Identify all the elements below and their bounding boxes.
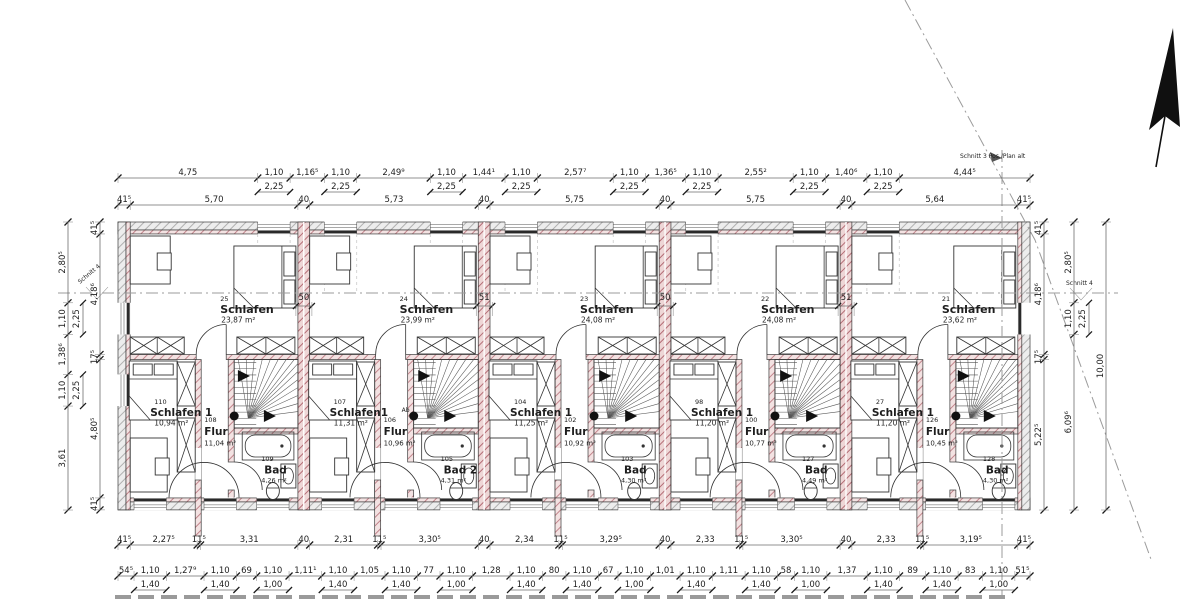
svg-text:2,25: 2,25	[264, 182, 283, 192]
desk-icon	[852, 236, 893, 284]
svg-text:1,28: 1,28	[482, 566, 501, 576]
svg-text:1,10: 1,10	[328, 566, 347, 576]
svg-text:2,31: 2,31	[334, 535, 353, 545]
svg-text:1,00: 1,00	[263, 580, 282, 590]
svg-text:Flur: Flur	[564, 426, 588, 438]
svg-text:1,10: 1,10	[932, 566, 951, 576]
svg-text:1,10: 1,10	[620, 168, 639, 178]
svg-text:1,10: 1,10	[874, 566, 893, 576]
svg-text:Bad 2: Bad 2	[444, 465, 478, 477]
svg-text:Schlafen: Schlafen	[220, 303, 274, 316]
svg-text:3,29⁵: 3,29⁵	[600, 535, 622, 545]
svg-text:24: 24	[400, 295, 408, 303]
unit-1: 25Schlafen23,87 m²110Schlafen 110,94 m²1…	[129, 236, 298, 500]
svg-text:1,40: 1,40	[932, 580, 951, 590]
svg-text:2,57⁷: 2,57⁷	[564, 168, 587, 178]
svg-text:69: 69	[241, 566, 252, 576]
svg-text:128: 128	[983, 455, 995, 463]
svg-text:2,25: 2,25	[620, 182, 639, 192]
svg-text:4,30 m²: 4,30 m²	[983, 477, 1009, 485]
dim-right-inner: 41⁵4,18⁶17⁵5,22⁵	[1034, 219, 1049, 514]
svg-text:1,16⁵: 1,16⁵	[296, 168, 318, 178]
svg-text:17⁵: 17⁵	[90, 350, 100, 364]
svg-text:89: 89	[907, 566, 918, 576]
desk-icon	[130, 438, 169, 492]
svg-text:80: 80	[549, 566, 560, 576]
svg-text:10,77 m²: 10,77 m²	[745, 440, 777, 448]
svg-text:41⁵: 41⁵	[117, 195, 131, 205]
wardrobe-icon	[490, 337, 544, 354]
svg-text:Ab: Ab	[402, 407, 410, 414]
svg-text:10,92 m²: 10,92 m²	[564, 440, 596, 448]
svg-text:1,40⁶: 1,40⁶	[835, 168, 858, 178]
winder-stair-icon	[230, 360, 298, 428]
svg-text:Bad: Bad	[624, 465, 647, 477]
svg-text:23,62 m²: 23,62 m²	[943, 316, 977, 325]
svg-text:1,01: 1,01	[656, 566, 675, 576]
svg-text:5,75: 5,75	[565, 195, 584, 205]
svg-text:11⁵: 11⁵	[192, 535, 206, 545]
svg-text:Flur: Flur	[926, 426, 950, 438]
bathtub-icon	[425, 435, 472, 457]
desk-icon	[310, 438, 349, 492]
svg-text:23,99 m²: 23,99 m²	[401, 316, 435, 325]
svg-text:41⁵: 41⁵	[90, 497, 100, 511]
wardrobe-icon	[310, 337, 364, 354]
svg-text:40: 40	[479, 195, 490, 205]
svg-text:23: 23	[580, 295, 588, 303]
closet-icon	[899, 362, 917, 406]
svg-text:40: 40	[660, 535, 671, 545]
svg-text:104: 104	[514, 398, 526, 406]
svg-text:25: 25	[220, 295, 228, 303]
desk-icon	[671, 236, 712, 284]
svg-text:1,10: 1,10	[801, 566, 820, 576]
svg-text:1,10: 1,10	[58, 309, 68, 328]
svg-text:Bad: Bad	[986, 465, 1009, 477]
svg-text:Schlafen: Schlafen	[580, 303, 634, 316]
svg-text:40: 40	[298, 535, 309, 545]
svg-text:40: 40	[841, 195, 852, 205]
svg-text:1,00: 1,00	[625, 580, 644, 590]
svg-text:2,49⁹: 2,49⁹	[382, 168, 405, 178]
svg-text:2,25: 2,25	[692, 182, 711, 192]
svg-text:10,94 m²: 10,94 m²	[154, 419, 188, 428]
svg-text:107: 107	[334, 398, 346, 406]
wardrobe-icon	[598, 337, 656, 354]
svg-text:Schlafen 1: Schlafen 1	[872, 407, 934, 419]
double-bed-icon	[414, 246, 476, 308]
svg-text:11,04 m²: 11,04 m²	[204, 440, 236, 448]
svg-text:100: 100	[745, 416, 757, 424]
svg-text:4,80⁵: 4,80⁵	[90, 418, 100, 440]
svg-text:1,40: 1,40	[328, 580, 347, 590]
svg-text:1,05: 1,05	[360, 566, 379, 576]
svg-text:2,25: 2,25	[72, 309, 82, 328]
unit-3: 23Schlafen24,08 m²104Schlafen 111,25 m²1…	[489, 236, 659, 500]
wardrobe-icon	[130, 337, 184, 354]
wardrobe-icon	[852, 337, 906, 354]
svg-text:5,70: 5,70	[205, 195, 224, 205]
svg-text:40: 40	[841, 535, 852, 545]
svg-text:4,44⁵: 4,44⁵	[953, 168, 975, 178]
winder-stair-icon	[770, 360, 840, 428]
svg-text:1,36⁵: 1,36⁵	[654, 168, 676, 178]
svg-text:1,10: 1,10	[752, 566, 771, 576]
svg-text:1,10: 1,10	[141, 566, 160, 576]
svg-text:11⁵: 11⁵	[553, 535, 567, 545]
svg-text:1,10: 1,10	[687, 566, 706, 576]
svg-text:2,25: 2,25	[800, 182, 819, 192]
double-bed-icon	[954, 246, 1016, 308]
floor-plan-canvas: 25Schlafen23,87 m²110Schlafen 110,94 m²1…	[0, 0, 1200, 600]
svg-text:1,37: 1,37	[838, 566, 857, 576]
svg-text:21: 21	[942, 295, 950, 303]
dim-bottom-rooms: 41⁵2,27⁵11⁵3,31402,3111⁵3,30⁵402,3411⁵3,…	[115, 535, 1034, 550]
svg-text:17⁵: 17⁵	[1034, 350, 1044, 364]
svg-text:5,22⁵: 5,22⁵	[1034, 424, 1044, 446]
dim-left-inner: 41⁵4,18⁶17⁵4,80⁵41⁵	[90, 219, 105, 514]
unit-4: 22Schlafen24,08 m²98Schlafen 111,20 m²10…	[670, 236, 840, 500]
svg-text:Schlafen: Schlafen	[761, 303, 815, 316]
svg-text:109: 109	[261, 455, 273, 463]
svg-text:2,33: 2,33	[877, 535, 896, 545]
svg-text:3,31: 3,31	[240, 535, 259, 545]
svg-text:1,40: 1,40	[752, 580, 771, 590]
svg-text:1,40: 1,40	[392, 580, 411, 590]
winder-stair-icon	[951, 360, 1017, 428]
svg-text:1,10: 1,10	[264, 168, 283, 178]
svg-text:1,10: 1,10	[447, 566, 466, 576]
svg-text:1,10: 1,10	[874, 168, 893, 178]
svg-text:2,80⁵: 2,80⁵	[58, 251, 68, 273]
svg-text:50: 50	[660, 293, 671, 303]
dim-bottom-windows: 54⁵1,101,401,27⁹1,101,40691,101,001,11¹1…	[115, 566, 1034, 593]
svg-text:1,10: 1,10	[512, 168, 531, 178]
svg-text:5,75: 5,75	[746, 195, 765, 205]
wardrobe-icon	[237, 337, 295, 354]
svg-text:4,26 m²: 4,26 m²	[261, 477, 287, 485]
svg-text:11,25 m²: 11,25 m²	[514, 419, 548, 428]
svg-text:1,10: 1,10	[263, 566, 282, 576]
double-bed-icon	[234, 246, 296, 308]
svg-text:1,40: 1,40	[211, 580, 230, 590]
double-bed-icon	[776, 246, 838, 308]
svg-text:2,27⁵: 2,27⁵	[153, 535, 175, 545]
svg-text:4,31 m²: 4,31 m²	[441, 477, 467, 485]
desk-icon	[671, 438, 710, 492]
svg-text:40: 40	[479, 535, 490, 545]
svg-text:98: 98	[695, 398, 703, 406]
svg-text:1,10: 1,10	[573, 566, 592, 576]
toilet-icon	[628, 483, 641, 500]
svg-text:24,08 m²: 24,08 m²	[762, 316, 796, 325]
svg-text:1,10: 1,10	[800, 168, 819, 178]
svg-text:Schnitt 4: Schnitt 4	[77, 263, 102, 286]
svg-text:Schlafen 1: Schlafen 1	[510, 407, 572, 419]
dim-top-walls: 41⁵5,70405,73405,75405,75405,6441⁵	[115, 195, 1034, 210]
svg-text:103: 103	[621, 455, 633, 463]
svg-text:5,73: 5,73	[384, 195, 403, 205]
closet-icon	[537, 362, 555, 406]
svg-text:1,00: 1,00	[801, 580, 820, 590]
svg-text:2,25: 2,25	[512, 182, 531, 192]
svg-text:1,10: 1,10	[517, 566, 536, 576]
svg-text:11⁵: 11⁵	[915, 535, 929, 545]
wardrobe-icon	[957, 337, 1015, 354]
desk-icon	[310, 236, 351, 284]
svg-text:2,25: 2,25	[331, 182, 350, 192]
toilet-icon	[450, 483, 463, 500]
svg-text:1,44¹: 1,44¹	[473, 168, 495, 178]
svg-text:1,10: 1,10	[392, 566, 411, 576]
svg-text:2,34: 2,34	[515, 535, 534, 545]
svg-text:2,25: 2,25	[1078, 309, 1088, 328]
svg-text:108: 108	[204, 416, 216, 424]
svg-text:10,45 m²: 10,45 m²	[926, 440, 958, 448]
svg-text:Schlafen: Schlafen	[942, 303, 996, 316]
svg-text:1,40: 1,40	[874, 580, 893, 590]
desk-icon	[490, 438, 529, 492]
svg-text:11⁵: 11⁵	[372, 535, 386, 545]
svg-text:51: 51	[841, 293, 852, 303]
floor-plan-svg: 25Schlafen23,87 m²110Schlafen 110,94 m²1…	[0, 0, 1200, 600]
desk-icon	[490, 236, 531, 284]
svg-text:1,40: 1,40	[687, 580, 706, 590]
svg-text:110: 110	[154, 398, 166, 406]
svg-text:54⁵: 54⁵	[119, 566, 133, 576]
svg-text:1,40: 1,40	[573, 580, 592, 590]
svg-text:1,10: 1,10	[692, 168, 711, 178]
svg-text:Schlafen: Schlafen	[400, 303, 454, 316]
svg-text:Schlafen 1: Schlafen 1	[150, 407, 212, 419]
svg-text:3,61: 3,61	[58, 449, 68, 468]
svg-text:1,10: 1,10	[1064, 309, 1074, 328]
dim-right-mid: 2,80⁵1,102,256,09⁶	[1064, 219, 1092, 514]
svg-text:2,25: 2,25	[874, 182, 893, 192]
svg-text:1,00: 1,00	[447, 580, 466, 590]
dim-right-total: 10,00	[1096, 219, 1111, 514]
svg-text:50: 50	[298, 293, 309, 303]
bathtub-icon	[605, 435, 652, 457]
svg-text:105: 105	[441, 455, 453, 463]
svg-text:2,25: 2,25	[72, 381, 82, 400]
closet-icon	[177, 362, 195, 406]
svg-text:2,25: 2,25	[437, 182, 456, 192]
bathtub-icon	[786, 435, 833, 457]
wardrobe-icon	[417, 337, 475, 354]
svg-text:3,19⁵: 3,19⁵	[960, 535, 982, 545]
svg-text:6,09⁶: 6,09⁶	[1064, 410, 1074, 433]
svg-text:4,49 m²: 4,49 m²	[802, 477, 828, 485]
svg-text:126: 126	[926, 416, 938, 424]
svg-text:11⁵: 11⁵	[734, 535, 748, 545]
svg-text:Schlafen1: Schlafen1	[330, 407, 388, 419]
toilet-icon	[992, 483, 1005, 500]
svg-text:40: 40	[660, 195, 671, 205]
svg-text:Schlafen 1: Schlafen 1	[691, 407, 753, 419]
dim-top-windows: 4,751,102,251,16⁵1,102,252,49⁹1,102,251,…	[115, 168, 1034, 195]
svg-text:2,33: 2,33	[696, 535, 715, 545]
svg-text:1,11¹: 1,11¹	[294, 566, 316, 576]
svg-text:83: 83	[965, 566, 976, 576]
wardrobe-icon	[671, 337, 725, 354]
svg-text:1,38⁶: 1,38⁶	[58, 343, 68, 366]
svg-text:58: 58	[781, 566, 792, 576]
svg-text:11,31 m²: 11,31 m²	[334, 419, 368, 428]
svg-text:11,20 m²: 11,20 m²	[695, 419, 729, 428]
svg-text:23,87 m²: 23,87 m²	[221, 316, 255, 325]
toilet-icon	[266, 483, 279, 500]
bathtub-icon	[245, 435, 291, 457]
svg-text:Bad: Bad	[805, 465, 828, 477]
svg-text:5,64: 5,64	[925, 195, 944, 205]
svg-text:10,96 m²: 10,96 m²	[384, 440, 416, 448]
dim-left-outer: 2,80⁵1,102,251,38⁶1,102,253,61	[58, 219, 86, 514]
svg-text:4,18⁶: 4,18⁶	[1034, 282, 1044, 305]
desk-icon	[852, 438, 891, 492]
svg-text:1,40: 1,40	[517, 580, 536, 590]
svg-text:51⁵: 51⁵	[1015, 566, 1029, 576]
svg-text:41⁵: 41⁵	[117, 535, 131, 545]
svg-text:4,75: 4,75	[178, 168, 197, 178]
svg-text:27: 27	[876, 398, 884, 406]
svg-text:2,55²: 2,55²	[744, 168, 766, 178]
closet-icon	[357, 362, 375, 406]
winder-stair-icon	[409, 360, 478, 428]
svg-text:1,10: 1,10	[331, 168, 350, 178]
svg-text:1,10: 1,10	[211, 566, 230, 576]
svg-text:1,10: 1,10	[58, 381, 68, 400]
svg-text:3,30⁵: 3,30⁵	[418, 535, 440, 545]
svg-text:40: 40	[298, 195, 309, 205]
svg-text:2,80⁵: 2,80⁵	[1064, 251, 1074, 273]
svg-text:1,27⁹: 1,27⁹	[174, 566, 197, 576]
svg-text:67: 67	[603, 566, 614, 576]
svg-text:Bad: Bad	[264, 465, 287, 477]
double-bed-icon	[595, 246, 657, 308]
svg-text:127: 127	[802, 455, 814, 463]
svg-text:Schnitt 4: Schnitt 4	[1066, 280, 1093, 287]
svg-text:106: 106	[384, 416, 396, 424]
unit-2: 24Schlafen23,99 m²107Schlafen111,31 m²10…	[309, 236, 479, 500]
svg-text:41⁵: 41⁵	[1034, 221, 1044, 235]
wardrobe-icon	[779, 337, 837, 354]
svg-text:Flur: Flur	[745, 426, 769, 438]
svg-text:77: 77	[423, 566, 434, 576]
svg-text:41⁵: 41⁵	[1017, 535, 1031, 545]
north-arrow-icon	[1149, 28, 1180, 167]
svg-text:11,20 m²: 11,20 m²	[876, 419, 910, 428]
svg-text:1,11: 1,11	[719, 566, 738, 576]
bathtub-icon	[967, 435, 1011, 457]
desk-icon	[130, 236, 171, 284]
svg-text:41⁵: 41⁵	[90, 221, 100, 235]
svg-text:Schnitt 3 Pos./Plan alt: Schnitt 3 Pos./Plan alt	[960, 153, 1026, 160]
svg-text:1,10: 1,10	[437, 168, 456, 178]
svg-text:10,00: 10,00	[1096, 354, 1106, 378]
svg-text:Flur: Flur	[384, 426, 408, 438]
svg-text:102: 102	[564, 416, 576, 424]
closet-icon	[718, 362, 736, 406]
winder-stair-icon	[590, 360, 660, 428]
svg-text:1,10: 1,10	[625, 566, 644, 576]
unit-5: 21Schlafen23,62 m²27Schlafen 111,20 m²12…	[851, 236, 1018, 500]
svg-text:41⁵: 41⁵	[1017, 195, 1031, 205]
svg-text:1,40: 1,40	[141, 580, 160, 590]
svg-text:22: 22	[761, 295, 769, 303]
svg-text:51: 51	[479, 293, 490, 303]
svg-text:Flur: Flur	[204, 426, 228, 438]
svg-text:1,00: 1,00	[989, 580, 1008, 590]
svg-text:1,10: 1,10	[989, 566, 1008, 576]
svg-text:3,30⁵: 3,30⁵	[780, 535, 802, 545]
svg-text:4,18⁶: 4,18⁶	[90, 282, 100, 305]
svg-text:4,30 m²: 4,30 m²	[621, 477, 647, 485]
svg-text:24,08 m²: 24,08 m²	[581, 316, 615, 325]
toilet-icon	[804, 483, 817, 500]
